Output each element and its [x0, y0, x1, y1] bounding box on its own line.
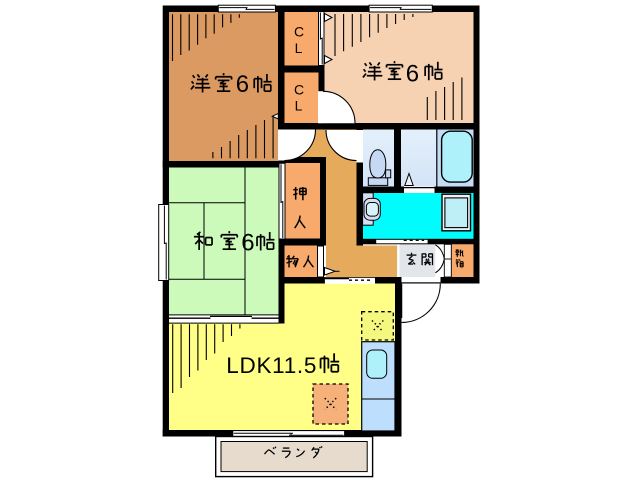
svg-text:L: L	[295, 98, 303, 114]
svg-text:LDK11.5: LDK11.5	[226, 353, 317, 378]
svg-text:6: 6	[406, 60, 419, 87]
svg-text:C: C	[294, 24, 304, 40]
svg-text:6: 6	[241, 230, 254, 257]
svg-text:6: 6	[236, 71, 249, 98]
svg-text:C: C	[294, 82, 304, 98]
svg-text:L: L	[295, 40, 303, 56]
